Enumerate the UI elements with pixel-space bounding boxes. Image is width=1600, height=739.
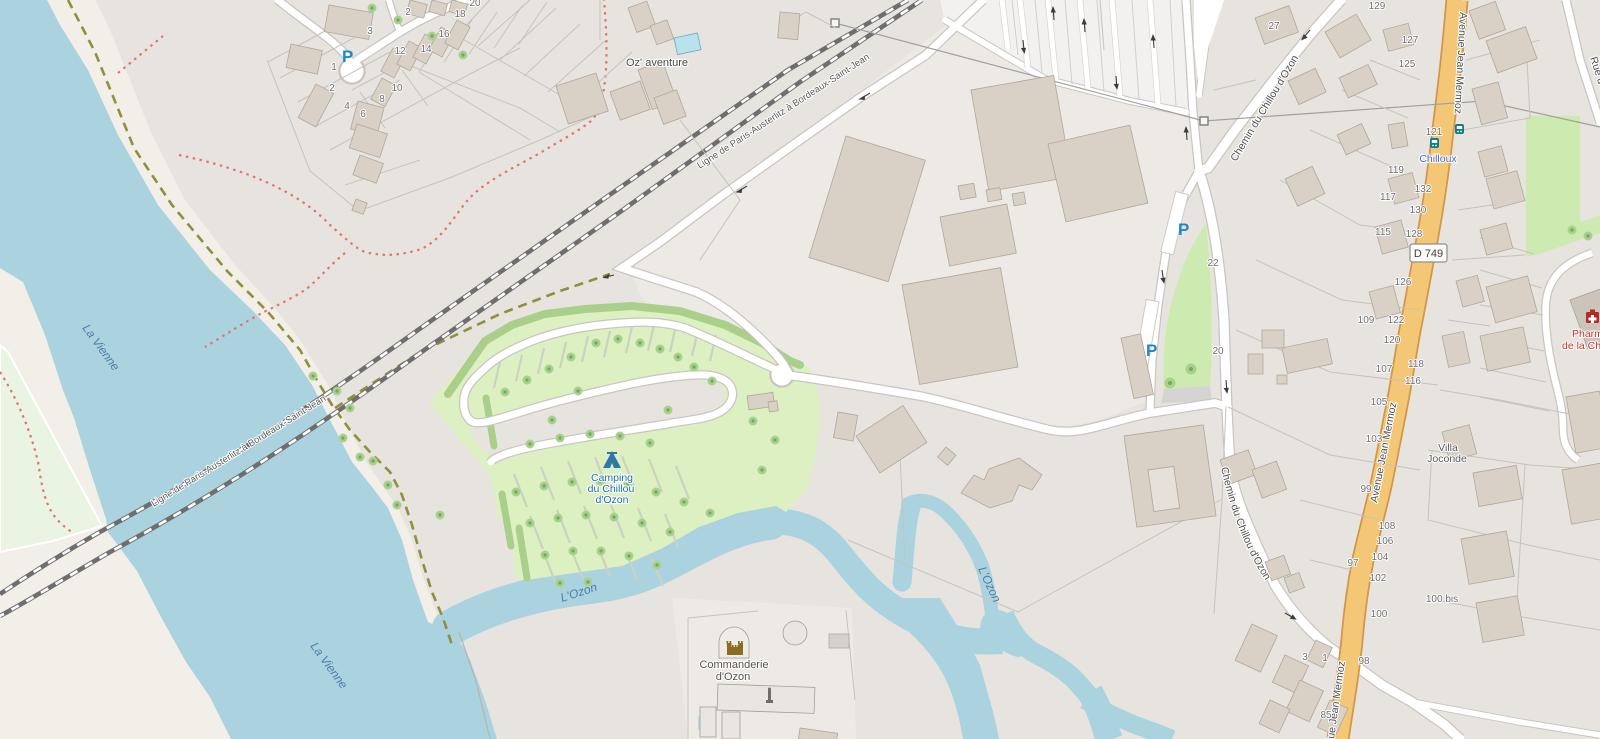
svg-text:16: 16 — [438, 29, 450, 40]
svg-text:2: 2 — [329, 83, 335, 94]
svg-text:121: 121 — [1426, 127, 1443, 138]
svg-text:1: 1 — [331, 62, 337, 73]
svg-text:130: 130 — [1410, 205, 1427, 216]
svg-text:104: 104 — [1372, 552, 1389, 563]
svg-text:106: 106 — [1377, 536, 1394, 547]
svg-text:103: 103 — [1366, 434, 1383, 445]
svg-text:97: 97 — [1347, 558, 1359, 569]
svg-text:Pharma: Pharma — [1572, 328, 1600, 340]
svg-text:119: 119 — [1388, 165, 1404, 176]
svg-text:98: 98 — [1358, 656, 1370, 667]
svg-text:1: 1 — [1322, 653, 1328, 664]
svg-text:10: 10 — [391, 83, 403, 94]
svg-text:128: 128 — [1406, 229, 1423, 240]
svg-text:127: 127 — [1402, 35, 1419, 46]
svg-text:108: 108 — [1379, 521, 1396, 532]
svg-text:Commanderie: Commanderie — [699, 659, 768, 671]
svg-text:125: 125 — [1399, 59, 1416, 70]
svg-text:117: 117 — [1380, 192, 1396, 203]
svg-text:4: 4 — [344, 101, 350, 112]
svg-text:8: 8 — [379, 94, 385, 105]
svg-text:20: 20 — [469, 0, 481, 9]
svg-text:P: P — [1178, 220, 1189, 239]
svg-text:d'Ozon: d'Ozon — [596, 494, 629, 506]
svg-text:Oz' aventure: Oz' aventure — [626, 57, 688, 69]
svg-text:Joconde: Joconde — [1427, 453, 1467, 465]
svg-text:100 bis: 100 bis — [1426, 594, 1458, 605]
svg-text:99: 99 — [1360, 484, 1372, 495]
svg-text:P: P — [1146, 341, 1157, 360]
svg-text:105: 105 — [1371, 397, 1388, 408]
svg-text:107: 107 — [1376, 364, 1393, 375]
svg-text:d'Ozon: d'Ozon — [716, 671, 751, 683]
svg-text:126: 126 — [1395, 277, 1412, 288]
svg-text:22: 22 — [1207, 258, 1219, 269]
svg-text:116: 116 — [1405, 376, 1421, 387]
svg-text:12: 12 — [394, 46, 406, 57]
svg-text:6: 6 — [360, 109, 366, 120]
svg-text:de la Chev: de la Chev — [1562, 340, 1600, 352]
svg-text:20: 20 — [1212, 346, 1224, 357]
svg-text:109: 109 — [1358, 315, 1375, 326]
svg-text:118: 118 — [1408, 359, 1424, 370]
svg-text:120: 120 — [1384, 335, 1401, 346]
svg-text:85: 85 — [1320, 710, 1332, 721]
svg-text:2: 2 — [405, 7, 411, 18]
svg-text:Chilloux: Chilloux — [1419, 153, 1457, 165]
svg-text:27: 27 — [1268, 21, 1280, 32]
svg-text:3: 3 — [367, 26, 373, 37]
svg-text:D 749: D 749 — [1414, 248, 1443, 260]
svg-text:132: 132 — [1415, 184, 1432, 195]
svg-text:115: 115 — [1375, 227, 1391, 238]
svg-text:100: 100 — [1371, 609, 1388, 620]
svg-text:14: 14 — [420, 44, 432, 55]
svg-text:3: 3 — [1302, 652, 1308, 663]
svg-text:122: 122 — [1388, 315, 1405, 326]
svg-text:129: 129 — [1369, 1, 1386, 12]
svg-text:18: 18 — [454, 9, 466, 20]
svg-text:102: 102 — [1370, 573, 1387, 584]
svg-text:P: P — [342, 47, 353, 66]
